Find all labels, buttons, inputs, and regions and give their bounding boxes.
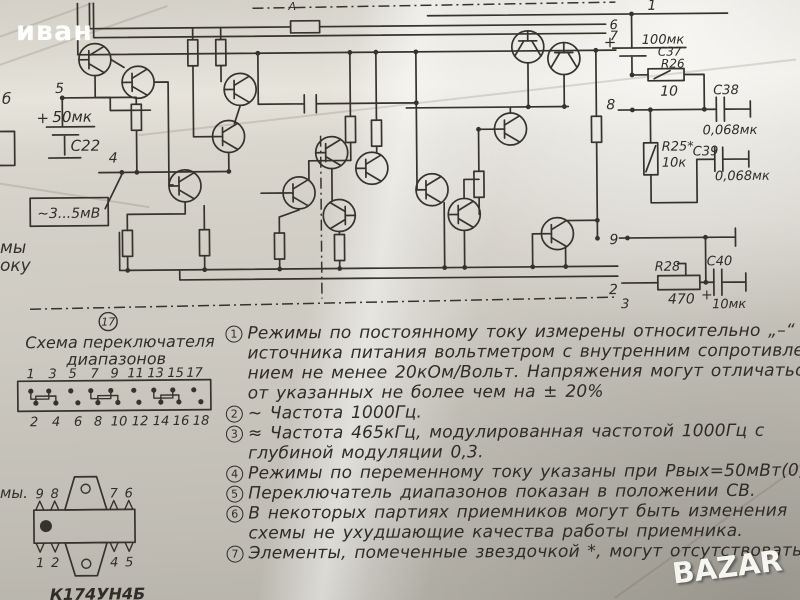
input-level-label: ~3...5мВ — [37, 206, 100, 223]
watermark-ivan: иван — [16, 16, 93, 47]
band-switch-diagram: 17 Схема переключателя диапазонов 1 3 5 … — [17, 312, 216, 431]
chip-name-label: К174УН4Б — [50, 584, 146, 600]
c40-name-label: C40 — [707, 254, 733, 269]
svg-text:13: 13 — [147, 366, 164, 381]
pin-5-label: 5 — [55, 81, 64, 97]
c40-plus-sign: + — [701, 287, 713, 303]
note-3: 3 ≈ Частота 465кГц, модулированная часто… — [226, 420, 800, 463]
note-4-number: 4 — [226, 466, 243, 483]
note-3-number: 3 — [226, 426, 243, 443]
c39-value-label: 0,068мк — [715, 169, 770, 184]
c37-plus-sign: + — [604, 33, 617, 51]
c39-name-label: C39 — [693, 144, 719, 159]
svg-text:6: 6 — [74, 415, 82, 430]
chip-pin-9-label: 9 — [35, 487, 43, 502]
c38-value-label: 0,068мк — [702, 123, 757, 138]
note-1-number: 1 — [225, 326, 242, 343]
switch-contacts — [28, 387, 203, 406]
svg-text:17: 17 — [186, 366, 203, 381]
chip-pin-4-label: 4 — [110, 555, 118, 570]
svg-text:4: 4 — [52, 415, 60, 430]
chip-pin-5-label: 5 — [125, 555, 133, 570]
switch-diagram-number: 17 — [101, 315, 115, 328]
pin-1-label: 1 — [647, 0, 656, 14]
note-6: 6 В некоторых партиях приемников могут б… — [226, 500, 800, 543]
svg-text:16: 16 — [173, 414, 190, 429]
note-7-number: 7 — [227, 546, 244, 563]
pin-4-label: 4 — [109, 150, 118, 166]
edge-fragment-b: б — [2, 90, 11, 108]
chip-pin1-mark — [40, 520, 52, 532]
r26-name-label: R26 — [661, 57, 685, 71]
chip-pin-1-label: 1 — [36, 556, 44, 571]
c22-value-label: 50мк — [52, 108, 92, 126]
notes-list: 1 Режимы по постоянному току измерены от… — [225, 320, 800, 563]
transistors — [79, 30, 582, 253]
chip-pin-8-label: 8 — [50, 487, 58, 502]
c22-plus-sign: + — [36, 109, 49, 127]
chip-pin-6-label: 6 — [124, 486, 132, 501]
edge-fragment-oku: оку — [0, 256, 31, 276]
chip-pin-2-label: 2 — [51, 556, 59, 571]
svg-text:12: 12 — [132, 414, 149, 429]
section-a-fragment: А — [287, 0, 296, 13]
resistors — [121, 17, 700, 294]
pin-8-label: 8 — [606, 97, 615, 113]
svg-text:8: 8 — [94, 415, 102, 430]
c38-name-label: C38 — [713, 83, 739, 98]
photo-of-schematic-page: 5 + 50мк C22 4 ~3...5мВ А 1 6 7 + 100мк … — [0, 0, 800, 600]
r25-value-label: 10к — [662, 155, 687, 170]
note-5-number: 5 — [226, 486, 243, 503]
r25-name-label: R25* — [662, 139, 695, 154]
svg-text:9: 9 — [110, 366, 118, 381]
c22-name-label: C22 — [71, 137, 101, 155]
svg-text:7: 7 — [90, 367, 99, 382]
chip-package-drawing: 9 8 7 6 1 2 4 5 К174УН4Б — [34, 476, 146, 600]
svg-text:15: 15 — [167, 366, 184, 381]
svg-text:18: 18 — [193, 414, 210, 429]
svg-text:10: 10 — [111, 414, 128, 429]
pin-9-label: 9 — [609, 232, 618, 248]
svg-text:2: 2 — [30, 415, 38, 430]
edge-fragment-my: мы — [0, 238, 26, 258]
r28-value-label: 470 — [668, 291, 695, 307]
svg-text:5: 5 — [68, 367, 76, 382]
pin-3-label: 3 — [621, 297, 629, 312]
svg-text:11: 11 — [127, 366, 144, 381]
note-1: 1 Режимы по постоянному току измерены от… — [225, 320, 800, 403]
r28-name-label: R28 — [655, 260, 681, 275]
note-2-number: 2 — [226, 406, 243, 423]
c40-value-label: 10мк — [712, 297, 746, 312]
svg-text:3: 3 — [48, 367, 56, 382]
svg-text:14: 14 — [153, 414, 170, 429]
note-6-number: 6 — [226, 506, 243, 523]
svg-text:1: 1 — [26, 367, 34, 382]
chip-pin-7-label: 7 — [109, 486, 118, 501]
pin-2-label: 2 — [609, 282, 618, 298]
switch-bottom-pin-numbers: 2 4 6 8 10 12 14 16 18 — [30, 414, 210, 431]
r26-value-label: 10 — [660, 84, 678, 100]
edge-fragment-my2: мы. — [0, 484, 28, 502]
